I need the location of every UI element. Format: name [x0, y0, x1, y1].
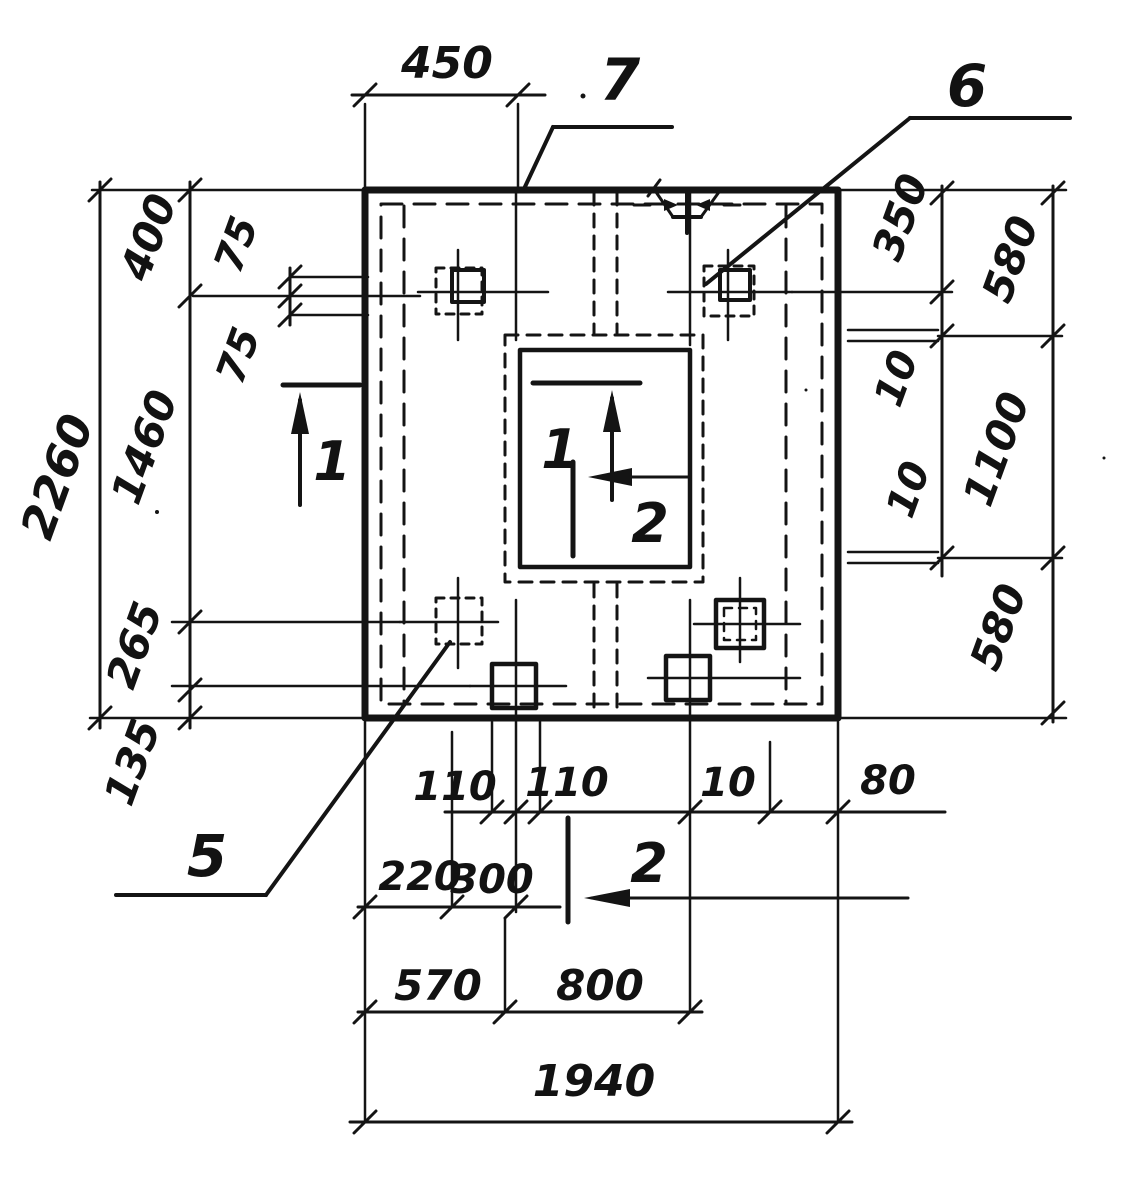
dim-left-265: 265 [96, 595, 172, 694]
dim-110-right: 110 [525, 760, 609, 806]
dim-right-580-bottom: 580 [960, 577, 1036, 676]
dim-300: 300 [450, 857, 534, 903]
dim-right-1100: 1100 [953, 386, 1039, 513]
section-arrow-left [584, 889, 630, 907]
section-2-opening-label: 2 [631, 492, 669, 555]
section-2-bottom-label: 2 [630, 832, 668, 895]
callout-7-label: 7 [600, 46, 641, 114]
dim-800: 800 [556, 961, 644, 1010]
dim-left-total: 2260 [10, 407, 105, 546]
callout-7: 7 [523, 46, 672, 191]
dim-right-350: 350 [862, 167, 938, 266]
dimension-labels: 450 2260 400 1460 265 135 75 75 350 10 1… [10, 38, 1049, 1107]
foundation-plan-drawing: 450 2260 400 1460 265 135 75 75 350 10 1… [0, 0, 1132, 1185]
section-mark-1-left: 1 [283, 385, 360, 505]
bolt-group-lower-left [400, 578, 566, 708]
section-arrow-up [603, 390, 621, 432]
dim-left-1460: 1460 [101, 384, 187, 511]
dim-top-width: 450 [400, 38, 493, 89]
dim-right-580-top: 580 [972, 209, 1048, 308]
callout-7-leader [523, 127, 553, 191]
dim-110-left: 110 [413, 764, 497, 810]
callout-6-label: 6 [947, 52, 987, 120]
dim-75-lower: 75 [208, 322, 270, 390]
dim-80: 80 [860, 758, 916, 804]
dim-10-bottom: 10 [700, 760, 756, 806]
dim-total-1940: 1940 [533, 1056, 655, 1107]
dim-570: 570 [394, 961, 482, 1010]
bolt-group-upper-left [418, 250, 548, 340]
scan-specks [155, 94, 1106, 515]
dim-right-10b: 10 [878, 456, 940, 524]
callout-5-label: 5 [187, 822, 227, 890]
dim-left-400: 400 [110, 187, 186, 287]
dim-left-135: 135 [94, 712, 170, 811]
section-1-left-label: 1 [313, 430, 351, 493]
dim-220: 220 [378, 854, 462, 900]
bolt-group-lower-right [648, 578, 800, 700]
drawing-sheet: 450 2260 400 1460 265 135 75 75 350 10 1… [0, 0, 1132, 1185]
section-mark-2-bottom: 2 [568, 818, 908, 922]
opening-outer-dashed [505, 335, 703, 582]
central-opening [505, 335, 703, 582]
dim-75-upper: 75 [206, 211, 268, 279]
dim-right-10a: 10 [866, 345, 928, 413]
section-arrow-up [291, 392, 309, 434]
section-mark-2-opening: 2 [573, 462, 688, 556]
